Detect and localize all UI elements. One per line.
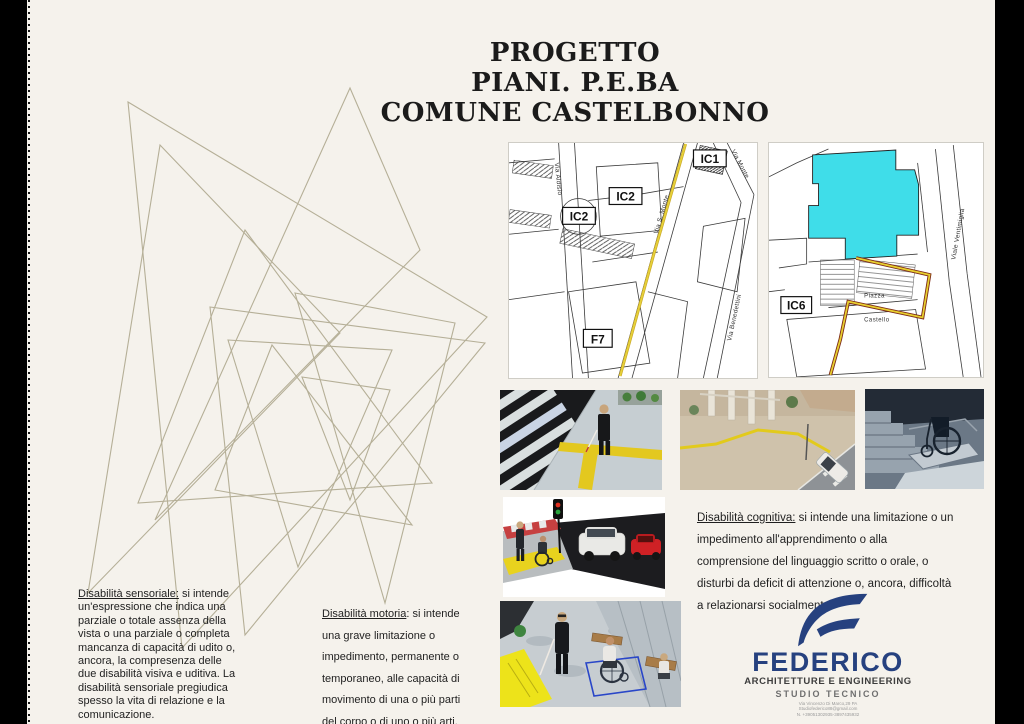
motoria-body: : si intende una grave limitazione o imp… bbox=[322, 608, 460, 724]
logo-phone: N. +39051302935-3897435932 bbox=[738, 712, 918, 717]
map-piazza-castello: IC6 Piazza Castello Viale Ventimiglia bbox=[768, 142, 984, 378]
abstract-line-sketch bbox=[40, 75, 500, 670]
map1-street-monte: Via Monte bbox=[729, 149, 750, 180]
logo-name: FEDERICO bbox=[738, 650, 918, 674]
map2-street-ventimiglia: Viale Ventimiglia bbox=[950, 208, 966, 261]
map2-castle-building bbox=[809, 150, 919, 259]
map1-street-benedettini: Via Benedettini bbox=[726, 294, 743, 342]
studio-logo: FEDERICO ARCHITETTURE E ENGINEERING STUD… bbox=[738, 592, 918, 717]
film-strip-left bbox=[0, 0, 27, 724]
poster-board: PROGETTO PIANI. P.E.BA COMUNE CASTELBONN… bbox=[0, 0, 1024, 724]
section-disabilita-motoria: Disabilità motoria: si intende una grave… bbox=[322, 604, 474, 724]
sensoriale-heading: Disabilità sensoriale: bbox=[78, 588, 179, 600]
motoria-heading: Disabilità motoria bbox=[322, 608, 406, 620]
render-aerial-street-corner bbox=[680, 390, 855, 490]
render-accessible-waiting-area bbox=[500, 601, 681, 707]
render-crossing-with-cars bbox=[503, 497, 665, 597]
logo-subtitle: STUDIO TECNICO bbox=[738, 689, 918, 699]
title-line-1: PROGETTO bbox=[320, 38, 830, 68]
map2-label-ic6: IC6 bbox=[787, 299, 806, 313]
map1-street-aldisio: Via Aldisio bbox=[553, 162, 563, 196]
map1-label-ic2-upper: IC2 bbox=[616, 190, 635, 204]
section-disabilita-sensoriale: Disabilità sensoriale: si intende un'esp… bbox=[78, 588, 241, 722]
render-crosswalk-blind-pedestrian bbox=[500, 390, 662, 490]
render-stair-platform-lift bbox=[865, 389, 984, 489]
logo-swoosh-f-icon bbox=[776, 592, 880, 650]
film-perforation bbox=[28, 0, 30, 724]
map1-label-ic1: IC1 bbox=[701, 152, 720, 166]
map1-label-f7: F7 bbox=[591, 332, 605, 346]
map1-label-ic2-circle: IC2 bbox=[570, 209, 589, 223]
logo-tagline: ARCHITETTURE E ENGINEERING bbox=[738, 676, 918, 687]
cognitiva-heading: Disabilità cognitiva: bbox=[697, 512, 795, 524]
traffic-light bbox=[553, 499, 563, 519]
map-urban-plan: Via Aldisio Via S. Monte Via Monte Via B… bbox=[508, 142, 758, 379]
film-strip-right bbox=[995, 0, 1024, 724]
map2-place-piazza: Piazza bbox=[864, 294, 885, 300]
logo-contacts: Via Vincenzo Di Marco,29 PA Studiofederi… bbox=[738, 701, 918, 717]
map2-place-castello: Castello bbox=[864, 317, 890, 323]
sensoriale-body: si intende un'espressione che indica una… bbox=[78, 588, 235, 721]
